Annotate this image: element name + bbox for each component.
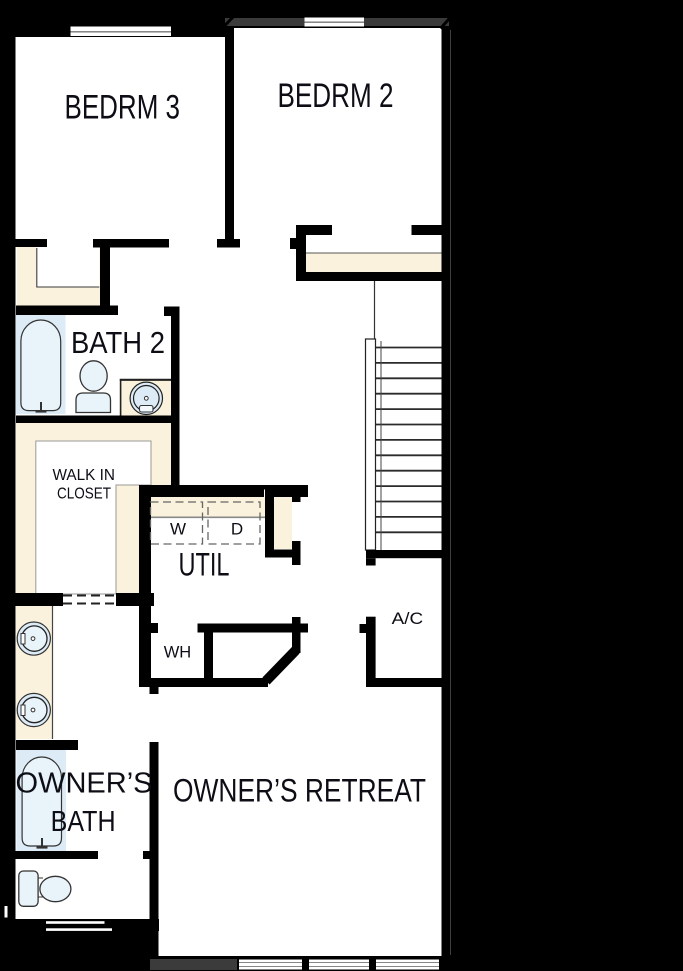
svg-text:CLOSET: CLOSET — [57, 486, 111, 503]
svg-text:UTIL: UTIL — [179, 546, 230, 582]
svg-text:OWNER’S RETREAT: OWNER’S RETREAT — [173, 773, 426, 809]
svg-text:WALK IN: WALK IN — [53, 467, 116, 484]
svg-text:OWNER’S: OWNER’S — [16, 768, 153, 800]
svg-text:W: W — [170, 520, 186, 539]
svg-text:BEDRM 2: BEDRM 2 — [278, 77, 394, 115]
svg-text:BATH 2: BATH 2 — [71, 326, 165, 360]
svg-text:A/C: A/C — [392, 609, 424, 628]
svg-text:BEDRM 3: BEDRM 3 — [65, 89, 181, 127]
svg-text:BATH: BATH — [51, 806, 116, 838]
svg-text:D: D — [231, 520, 243, 539]
svg-text:WH: WH — [164, 643, 192, 662]
